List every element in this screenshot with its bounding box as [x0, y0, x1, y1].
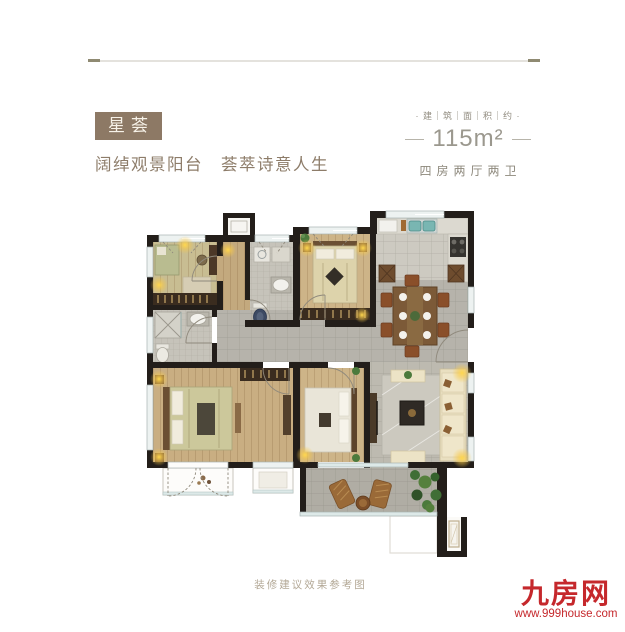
area-info: · 建｜筑｜面｜积｜约 · 115m² 四房两厅两卫	[393, 109, 543, 179]
top-divider	[88, 59, 540, 62]
unit-type: 四房两厅两卫	[393, 162, 543, 179]
area-value-row: 115m²	[393, 125, 543, 153]
decorative-line-left	[405, 139, 424, 140]
decorative-line-right	[512, 139, 531, 140]
divider-line	[88, 60, 540, 62]
floor-plan-illustration	[143, 205, 478, 560]
divider-endcap-left	[88, 59, 100, 62]
brand-logo: 九房网 www.999house.com	[508, 580, 624, 620]
floor-plan-svg	[143, 205, 478, 560]
brand-website: www.999house.com	[508, 608, 624, 620]
tagline: 阔绰观景阳台 荟萃诗意人生	[95, 151, 329, 175]
living-room-furniture	[370, 369, 466, 464]
project-name-badge: 星荟	[95, 112, 162, 140]
brand-logo-name: 九房网	[508, 580, 624, 608]
ac-unit	[231, 221, 247, 232]
divider-endcap-right	[528, 59, 540, 62]
bedroom3-furniture	[305, 388, 357, 452]
area-label: · 建｜筑｜面｜积｜约 ·	[393, 109, 543, 122]
area-value: 115m²	[432, 125, 503, 153]
plan-caption: 装修建议效果参考图	[143, 577, 478, 592]
poster-page: 星荟 阔绰观景阳台 荟萃诗意人生 · 建｜筑｜面｜积｜约 · 115m² 四房两…	[0, 0, 625, 632]
